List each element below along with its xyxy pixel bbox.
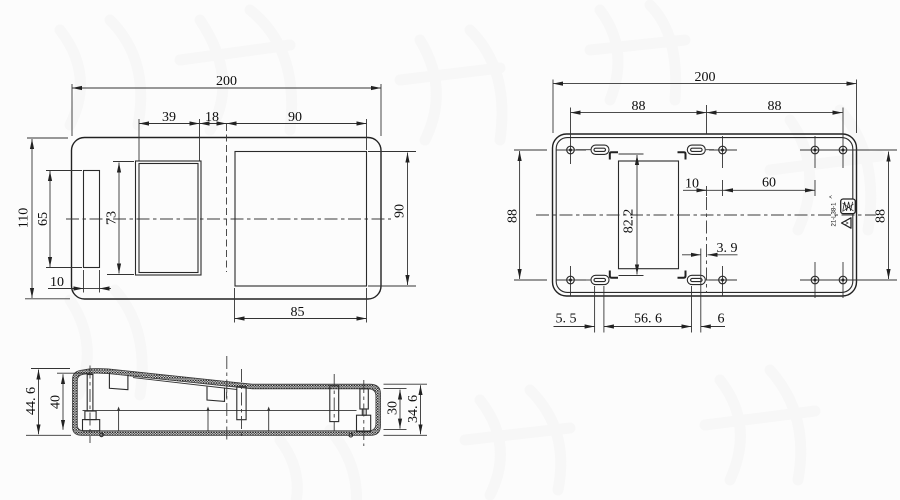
svg-text:21-L38-1: 21-L38-1 — [832, 202, 838, 227]
svg-text:90: 90 — [288, 110, 302, 125]
svg-text:73: 73 — [105, 211, 120, 225]
svg-text:65: 65 — [36, 212, 51, 226]
svg-text:39: 39 — [162, 110, 176, 125]
svg-text:40: 40 — [49, 395, 64, 409]
svg-text:88: 88 — [632, 99, 646, 114]
svg-text:18: 18 — [205, 110, 219, 125]
svg-text:10: 10 — [685, 177, 699, 192]
svg-text:30: 30 — [386, 401, 401, 415]
svg-text:34. 6: 34. 6 — [406, 395, 421, 423]
svg-text:88: 88 — [506, 209, 521, 223]
svg-text:10: 10 — [50, 275, 64, 290]
svg-text:6: 6 — [718, 312, 725, 327]
svg-text:60: 60 — [762, 176, 776, 191]
svg-text:90: 90 — [393, 204, 408, 218]
svg-text:88: 88 — [768, 99, 782, 114]
svg-text:200: 200 — [216, 74, 237, 89]
svg-text:3. 9: 3. 9 — [717, 241, 738, 256]
svg-text:56. 6: 56. 6 — [634, 312, 662, 327]
svg-text:88: 88 — [874, 209, 889, 223]
svg-text:200: 200 — [695, 70, 716, 85]
svg-text:44. 6: 44. 6 — [24, 387, 39, 415]
svg-text:85: 85 — [291, 305, 305, 320]
svg-text:82.2: 82.2 — [622, 209, 637, 234]
svg-text:A: A — [828, 195, 834, 199]
svg-text:5. 5: 5. 5 — [556, 312, 577, 327]
svg-text:110: 110 — [17, 208, 32, 228]
